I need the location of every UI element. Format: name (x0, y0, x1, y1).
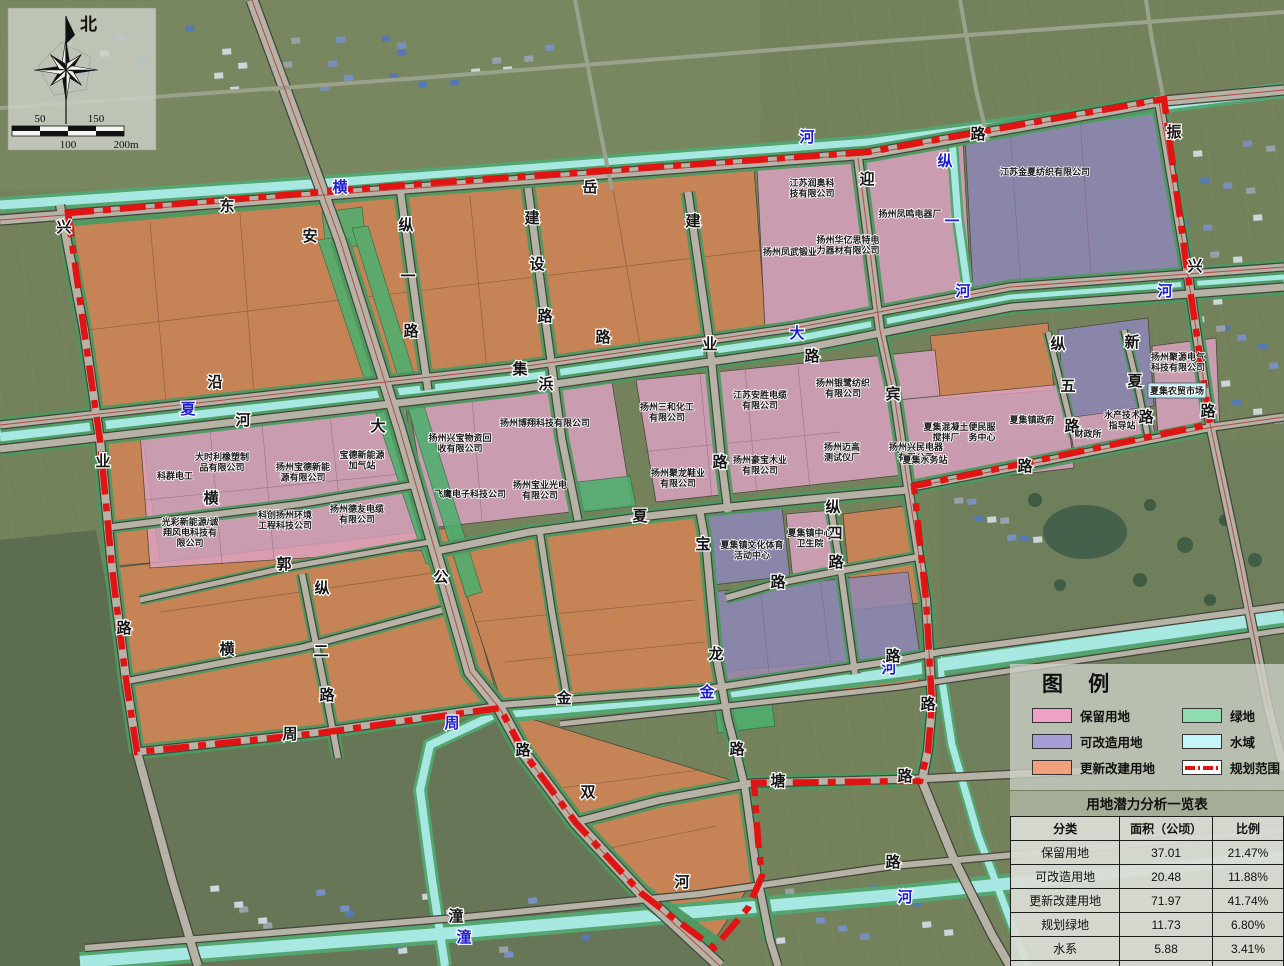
river-name-label: 一 (944, 214, 959, 230)
parcel-label: 科创扬州环境工程科技公司 (258, 509, 312, 531)
road-name-label: 路 (537, 307, 553, 325)
road-name-label: 河 (235, 411, 250, 429)
parcel-label: 扬州兴宝物资回收有限公司 (428, 432, 491, 454)
analysis-table-panel: 用地潜力分析一览表 分类面积（公顷）比例 保留用地37.0121.47%可改造用… (1010, 791, 1284, 966)
village-building (316, 889, 325, 896)
table-cell: 11.73 (1120, 913, 1213, 937)
parcel-label: 飞鹰电子科技公司 (434, 488, 506, 499)
legend-item: 保留用地 (1032, 706, 1182, 725)
village-building (1020, 535, 1029, 542)
road-name-label: 纵 (1050, 335, 1065, 353)
table-body: 保留用地37.0121.47%可改造用地20.4811.88%更新改建用地71.… (1011, 841, 1284, 966)
table-header-row: 分类面积（公顷）比例 (1011, 817, 1284, 841)
table-row: 水系5.883.41% (1011, 937, 1284, 961)
village-building (987, 516, 996, 523)
village-building (1269, 362, 1278, 369)
road-name-label: 业 (95, 453, 110, 470)
road-name-label: 集 (511, 360, 528, 378)
road-name-label: 河 (674, 873, 689, 891)
river-name-label: 夏 (179, 401, 196, 418)
parcel-label: 财政所 (1073, 428, 1101, 439)
parcel-label: 便民服务中心 (968, 421, 996, 443)
road-name-label: 兴 (1187, 258, 1202, 275)
legend-swatch-dashed-line (1182, 760, 1222, 775)
road-name-label: 大 (370, 417, 385, 435)
river-name-label: 河 (897, 888, 912, 906)
road-name-label: 路 (403, 322, 419, 340)
village-building (1223, 182, 1232, 189)
village-building (528, 897, 537, 904)
legend-item: 绿地 (1182, 706, 1282, 725)
table-row: 道路25.3414.70% (1011, 961, 1284, 966)
road-name-label: 夏 (631, 508, 648, 525)
legend-swatch-fill (1032, 708, 1072, 723)
parcel-label: 夏集水务站 (901, 454, 947, 465)
table-cell: 水系 (1011, 937, 1120, 961)
road-name-label: 横 (203, 489, 219, 507)
road-name-label: 郭 (276, 555, 291, 573)
road-name-label: 宾 (885, 385, 900, 403)
road-name-label: 路 (116, 619, 132, 637)
village-building (944, 929, 953, 936)
legend-label: 可改造用地 (1080, 732, 1143, 751)
parcel-label: 扬州华亿思特电力器材有限公司 (816, 234, 879, 256)
parcel-label: 科群电工 (157, 470, 193, 481)
village-building (1000, 517, 1009, 524)
parcel-label: 扬州博翔科技有限公司 (500, 417, 590, 428)
road-name-label: 路 (729, 740, 745, 758)
table-cell: 更新改建用地 (1011, 889, 1120, 913)
village-building (816, 917, 825, 924)
village-building (1007, 534, 1016, 541)
table-title: 用地潜力分析一览表 (1010, 793, 1284, 813)
table-row: 保留用地37.0121.47% (1011, 841, 1284, 865)
river-name-label: 周 (444, 715, 459, 732)
parcel-label: 扬州凤武锻业 (763, 246, 817, 257)
village-building (838, 925, 847, 932)
road-name-label: 路 (920, 695, 936, 713)
village-building (860, 933, 869, 940)
parcel-label: 扬州聚源电气科技有限公司 (1151, 351, 1205, 373)
legend-label: 规划范围 (1230, 758, 1280, 777)
village-building (450, 79, 459, 86)
road-name-label: 浜 (538, 375, 553, 393)
village-building (238, 62, 247, 69)
table-cell: 3.41% (1213, 937, 1284, 961)
legend-label: 绿地 (1230, 706, 1255, 725)
road-name-label: 路 (1200, 402, 1216, 420)
village-building (1243, 140, 1252, 147)
table-cell: 37.01 (1120, 841, 1213, 865)
road-name-label: 设 (529, 256, 544, 273)
road-name-label: 业 (702, 336, 717, 353)
parcel-label: 水产技术指导站 (1104, 409, 1140, 431)
river-name-label: 河 (955, 282, 970, 300)
road-name-label: 路 (595, 328, 611, 346)
road-name-label: 路 (804, 347, 820, 365)
road-name-label: 夏 (1126, 373, 1143, 390)
table-cell: 20.48 (1120, 865, 1213, 889)
river-name-label: 纵 (937, 152, 952, 170)
road-name-label: 新 (1124, 333, 1139, 351)
table-row: 规划绿地11.736.80% (1011, 913, 1284, 937)
road-name-label: 路 (1017, 457, 1033, 475)
village-building (397, 49, 406, 56)
village-building (397, 42, 406, 49)
legend-swatch-fill (1032, 734, 1072, 749)
village-building (336, 36, 345, 43)
scale-label-200: 200m (113, 139, 139, 151)
village-building (1193, 150, 1202, 157)
village-building (1033, 536, 1042, 543)
road-name-label: 路 (770, 573, 786, 591)
village-building (1232, 399, 1241, 406)
planning-map-screenshot: 横河夏大河河纵一周金河潼河兴业路东安公路沿河集浜横郭横纵二路大纵一路岳建设路路建… (0, 0, 1284, 966)
table-cell: 25.34 (1120, 961, 1213, 966)
river-name-label: 潼 (456, 928, 471, 946)
village-building (967, 498, 976, 505)
village-building (524, 55, 533, 62)
road-name-label: 二 (313, 644, 328, 660)
table-cell: 道路 (1011, 961, 1120, 966)
village-building (922, 921, 931, 928)
village-building (545, 44, 554, 51)
road-name-label: 岳 (582, 178, 597, 196)
road-name-label: 纵 (398, 216, 413, 234)
village-building (381, 35, 390, 42)
village-building (1246, 187, 1255, 194)
road-name-label: 路 (885, 647, 901, 665)
parcel-label: 扬州凤鸣电器厂 (878, 208, 941, 219)
legend-item: 可改造用地 (1032, 732, 1182, 751)
village-building (776, 937, 785, 944)
village-building (283, 61, 292, 68)
village-building (328, 60, 337, 67)
village-building (974, 515, 983, 522)
village-building (234, 901, 243, 908)
table-cell: 5.88 (1120, 937, 1213, 961)
parcel-label: 大时利橡塑制品有限公司 (195, 451, 249, 473)
road-name-label: 建 (685, 212, 701, 230)
village-building (1221, 380, 1230, 387)
road-name-label: 迎 (859, 170, 874, 188)
road-name-label: 塘 (770, 772, 785, 790)
village-building (1210, 251, 1219, 258)
legend-label: 保留用地 (1080, 706, 1130, 725)
village-building (1237, 334, 1246, 341)
village-building (1203, 224, 1212, 231)
village-building (340, 905, 349, 912)
legend-label: 水域 (1230, 732, 1255, 751)
legend-swatch-fill (1032, 760, 1072, 775)
road-name-label: 周 (282, 726, 297, 743)
table-cell: 41.74% (1213, 889, 1284, 913)
table-header-cell: 分类 (1011, 817, 1120, 841)
road-name-label: 东 (219, 197, 234, 215)
village-building (492, 57, 501, 64)
village-building (581, 934, 590, 941)
table-cell: 保留用地 (1011, 841, 1120, 865)
village-building (499, 946, 508, 953)
village-building (258, 917, 267, 924)
village-building (214, 72, 223, 79)
legend-item: 更新改建用地 (1032, 758, 1182, 777)
scale-label-150: 150 (88, 113, 105, 125)
road-name-label: 路 (319, 686, 335, 704)
road-name-label: 路 (1138, 408, 1154, 426)
village-building (222, 48, 231, 55)
road-name-label: 振 (1166, 123, 1181, 141)
road-name-label: 潼 (448, 907, 463, 925)
village-building (1266, 145, 1275, 152)
table-cell: 71.97 (1120, 889, 1213, 913)
river-name-label: 横 (332, 178, 348, 196)
table-cell: 可改造用地 (1011, 865, 1120, 889)
legend-item: 水域 (1182, 732, 1282, 751)
road-name-label: 路 (712, 453, 728, 471)
legend-panel: 图 例 保留用地可改造用地更新改建用地绿地水域规划范围 (1010, 664, 1284, 790)
village-building (1233, 256, 1242, 263)
road-name-label: 五 (1060, 379, 1075, 395)
road-name-label: 一 (400, 269, 415, 285)
road-name-label: 路 (828, 553, 844, 571)
legend-item: 规划范围 (1182, 758, 1282, 777)
village-building (1258, 343, 1267, 350)
table-cell: 6.80% (1213, 913, 1284, 937)
road-name-label: 安 (302, 227, 317, 245)
river-name-label: 河 (799, 128, 814, 146)
village-building (1253, 214, 1262, 221)
table-cell: 规划绿地 (1011, 913, 1120, 937)
compass-scale-panel: 北 50 150 100 200m (8, 8, 156, 151)
road-name-label: 路 (515, 741, 531, 759)
road-name-label: 纵 (314, 579, 329, 597)
table-cell: 14.70% (1213, 961, 1284, 966)
village-building (210, 885, 219, 892)
table-row: 更新改建用地71.9741.74% (1011, 889, 1284, 913)
legend-items: 保留用地可改造用地更新改建用地绿地水域规划范围 (1032, 702, 1272, 780)
village-building (954, 497, 963, 504)
village-building (291, 37, 300, 44)
village-building (185, 25, 194, 32)
road-name-label: 双 (580, 784, 595, 801)
table-header-cell: 面积（公顷） (1120, 817, 1213, 841)
village-building (1216, 325, 1225, 332)
road-name-label: 纵 (825, 498, 840, 516)
road-name-label: 路 (970, 125, 986, 143)
village-building (344, 74, 353, 81)
table-cell: 21.47% (1213, 841, 1284, 865)
road-name-label: 路 (897, 767, 913, 785)
village-building (1253, 408, 1262, 415)
river-name-label: 金 (698, 683, 715, 701)
road-name-label: 兴 (56, 219, 71, 236)
legend-swatch-fill (1182, 734, 1222, 749)
road-name-label: 公 (433, 569, 448, 586)
legend-swatch-fill (1182, 708, 1222, 723)
parcel-label: 扬州宝德新能源有限公司 (276, 461, 330, 483)
road-name-label: 横 (219, 640, 235, 658)
road-name-label: 宝 (695, 535, 710, 553)
scale-label-100: 100 (60, 139, 77, 151)
legend-label: 更新改建用地 (1080, 758, 1155, 777)
legend-title: 图 例 (1042, 668, 1272, 698)
landuse-analysis-table: 分类面积（公顷）比例 保留用地37.0121.47%可改造用地20.4811.8… (1010, 816, 1284, 966)
road-name-label: 龙 (707, 645, 723, 663)
parcel-label: 夏集镇政府 (1008, 414, 1054, 425)
parcel-label: 夏集农贸市场 (1149, 385, 1204, 396)
road-name-label: 建 (524, 209, 540, 227)
road-name-label: 金 (555, 689, 572, 707)
parcel-label: 江苏金夏纺织有限公司 (1000, 166, 1090, 177)
compass-north-label: 北 (80, 15, 97, 34)
table-cell: 11.88% (1213, 865, 1284, 889)
village-building (418, 81, 427, 88)
table-header-cell: 比例 (1213, 817, 1284, 841)
river-name-label: 大 (789, 324, 804, 342)
road-name-label: 沿 (207, 374, 222, 391)
parcel-label: 扬州迈高测试仪厂 (824, 441, 860, 463)
road-name-label: 路 (885, 853, 901, 871)
table-row: 可改造用地20.4811.88% (1011, 865, 1284, 889)
village-building (1200, 177, 1209, 184)
scale-label-50: 50 (35, 113, 47, 125)
parcel-label: 江苏润奥科技有限公司 (789, 177, 834, 199)
river-name-label: 河 (1157, 282, 1172, 300)
